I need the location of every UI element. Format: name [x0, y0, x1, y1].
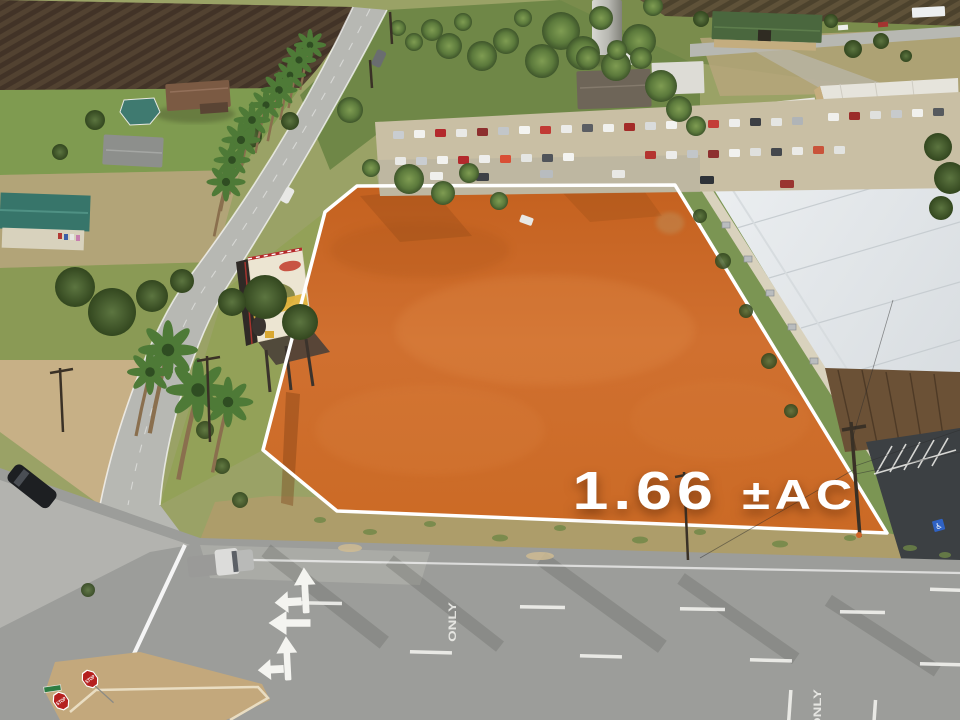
aerial-scene: ♿: [0, 0, 960, 720]
only-pavement-marking: ONLY: [446, 602, 459, 642]
only-pavement-marking: ONLY: [811, 689, 824, 720]
bare-tree: [656, 212, 684, 234]
aerial-lot-photo: ♿: [0, 0, 960, 720]
semi-trailer: [912, 6, 945, 18]
